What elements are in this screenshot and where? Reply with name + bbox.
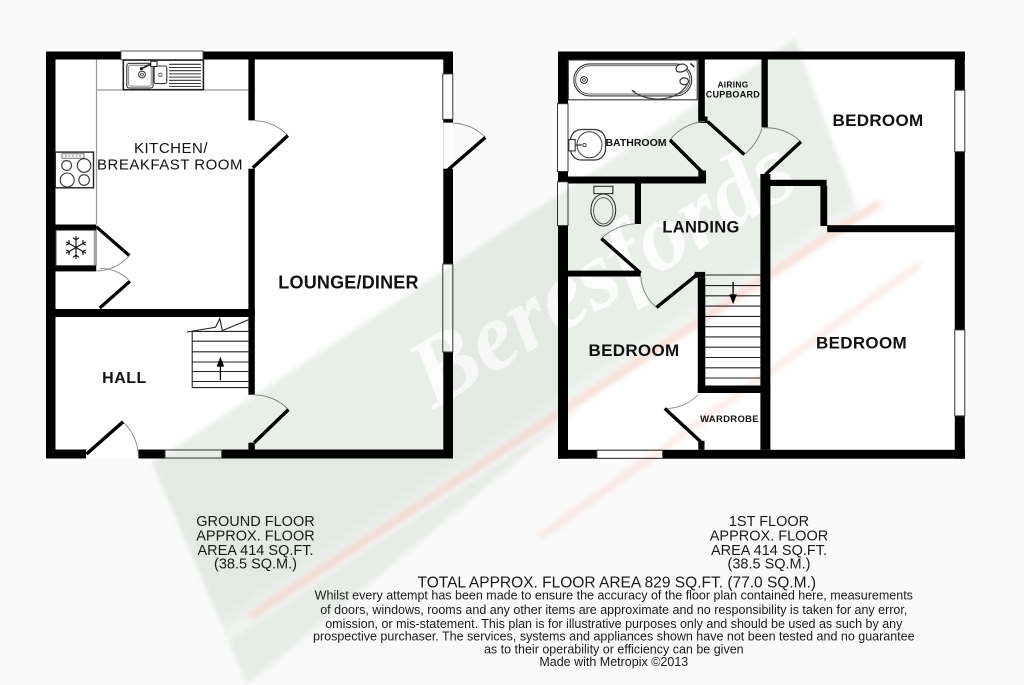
svg-text:(38.5 SQ.M.): (38.5 SQ.M.) (214, 557, 297, 573)
svg-text:(38.5 SQ.M.): (38.5 SQ.M.) (728, 557, 811, 573)
svg-text:BEDROOM: BEDROOM (816, 334, 907, 353)
svg-text:of doors, windows, rooms and a: of doors, windows, rooms and any other i… (320, 603, 907, 617)
svg-text:HALL: HALL (102, 370, 147, 387)
svg-text:BEDROOM: BEDROOM (833, 111, 924, 130)
svg-text:prospective purchaser. The ser: prospective purchaser. The services, sys… (313, 630, 915, 644)
svg-text:Made with Metropix ©2013: Made with Metropix ©2013 (539, 655, 688, 669)
svg-text:BREAKFAST ROOM: BREAKFAST ROOM (97, 157, 243, 174)
svg-text:Whilst every attempt has been: Whilst every attempt has been made to en… (315, 589, 913, 603)
svg-text:LOUNGE/DINER: LOUNGE/DINER (278, 273, 418, 293)
svg-text:KITCHEN/: KITCHEN/ (134, 140, 208, 157)
